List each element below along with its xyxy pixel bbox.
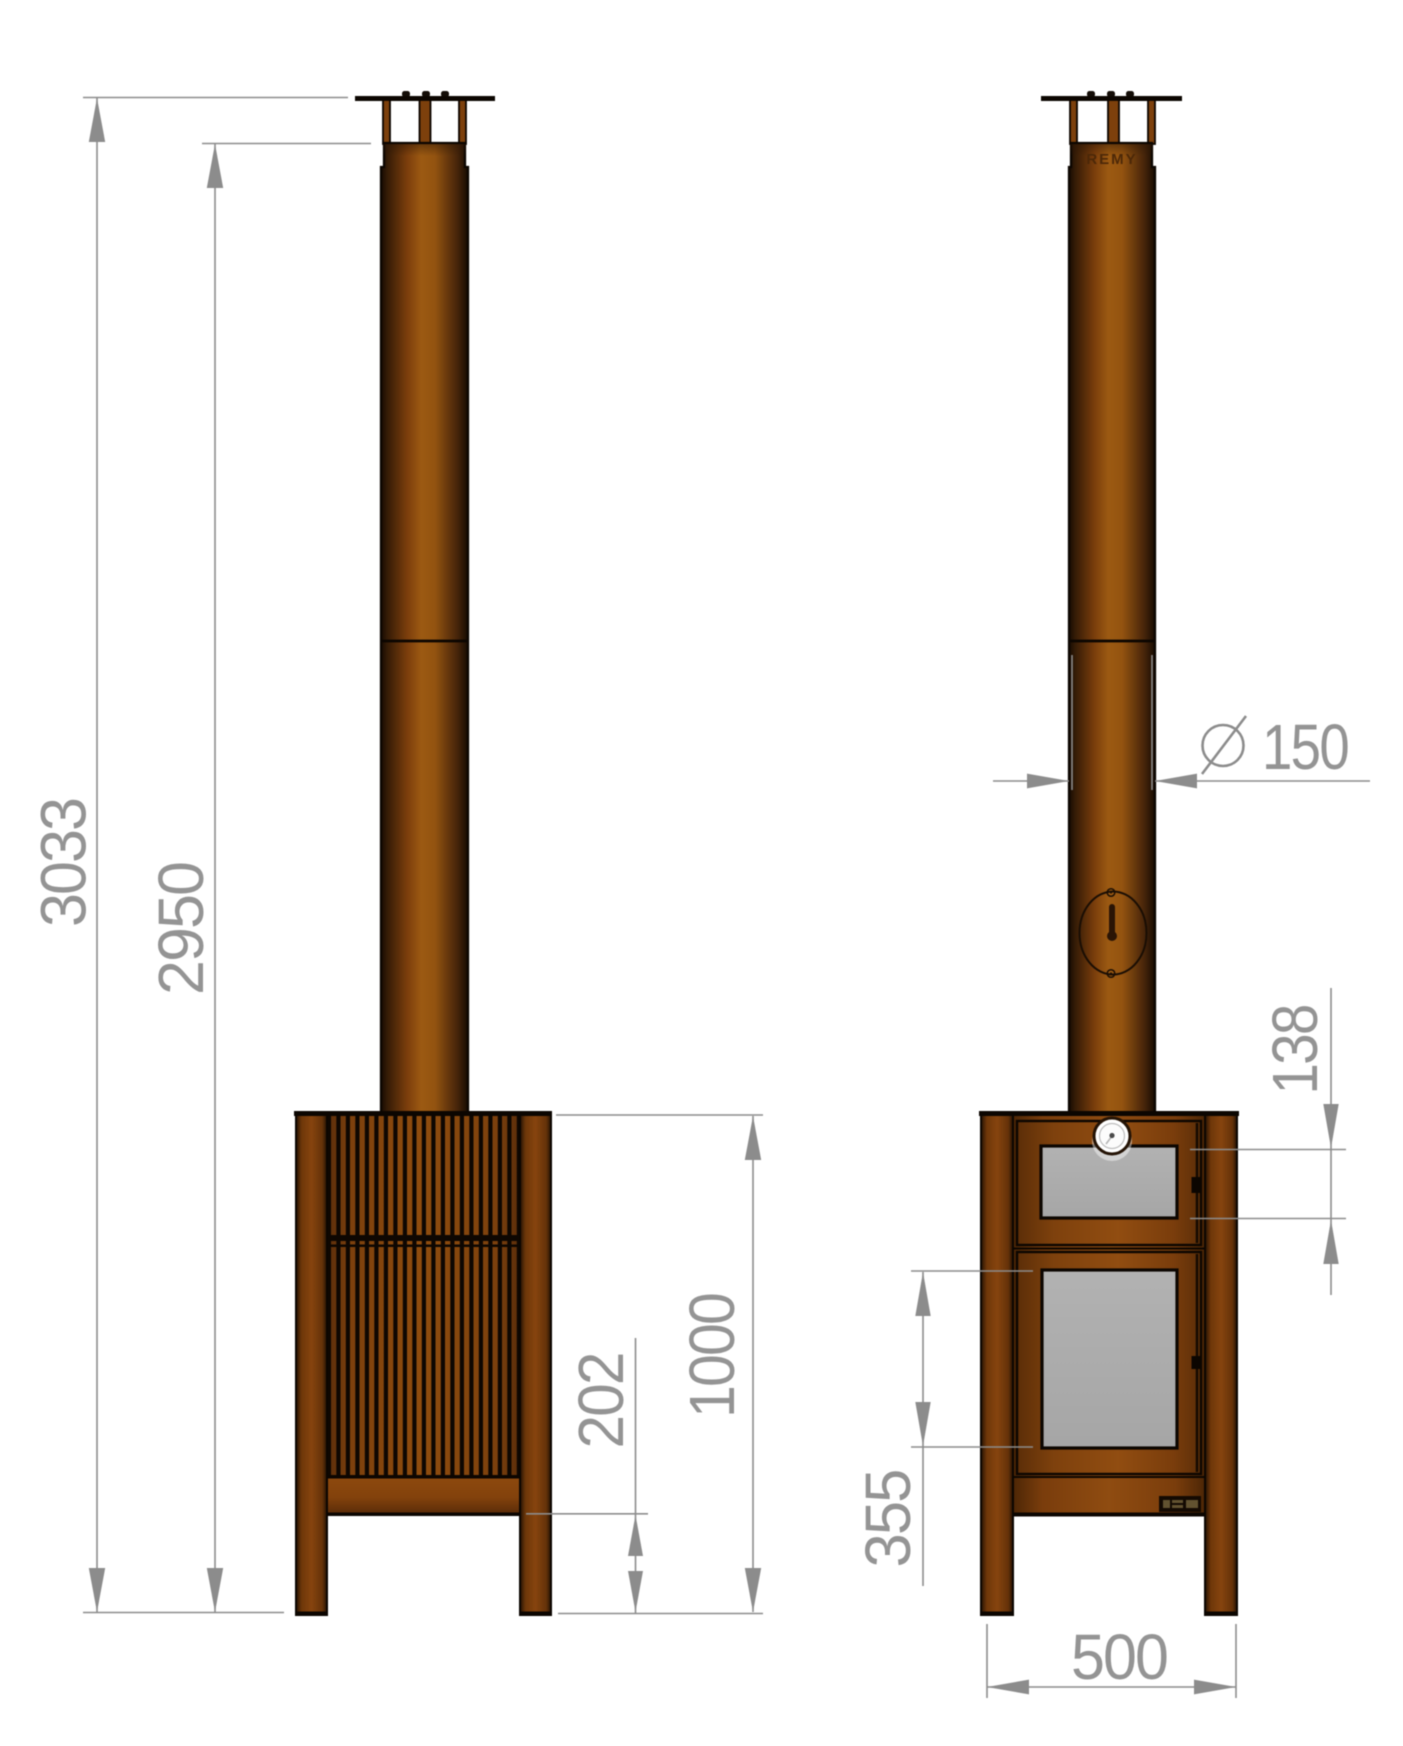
svg-text:202: 202	[565, 1354, 637, 1449]
svg-text:3033: 3033	[28, 799, 100, 927]
svg-text:REMY: REMY	[1086, 151, 1137, 168]
svg-text:150: 150	[1262, 711, 1348, 783]
svg-text:355: 355	[852, 1471, 924, 1568]
svg-text:2950: 2950	[145, 863, 217, 995]
svg-text:500: 500	[1071, 1621, 1167, 1693]
svg-text:1000: 1000	[676, 1294, 748, 1418]
svg-text:138: 138	[1259, 1006, 1331, 1095]
